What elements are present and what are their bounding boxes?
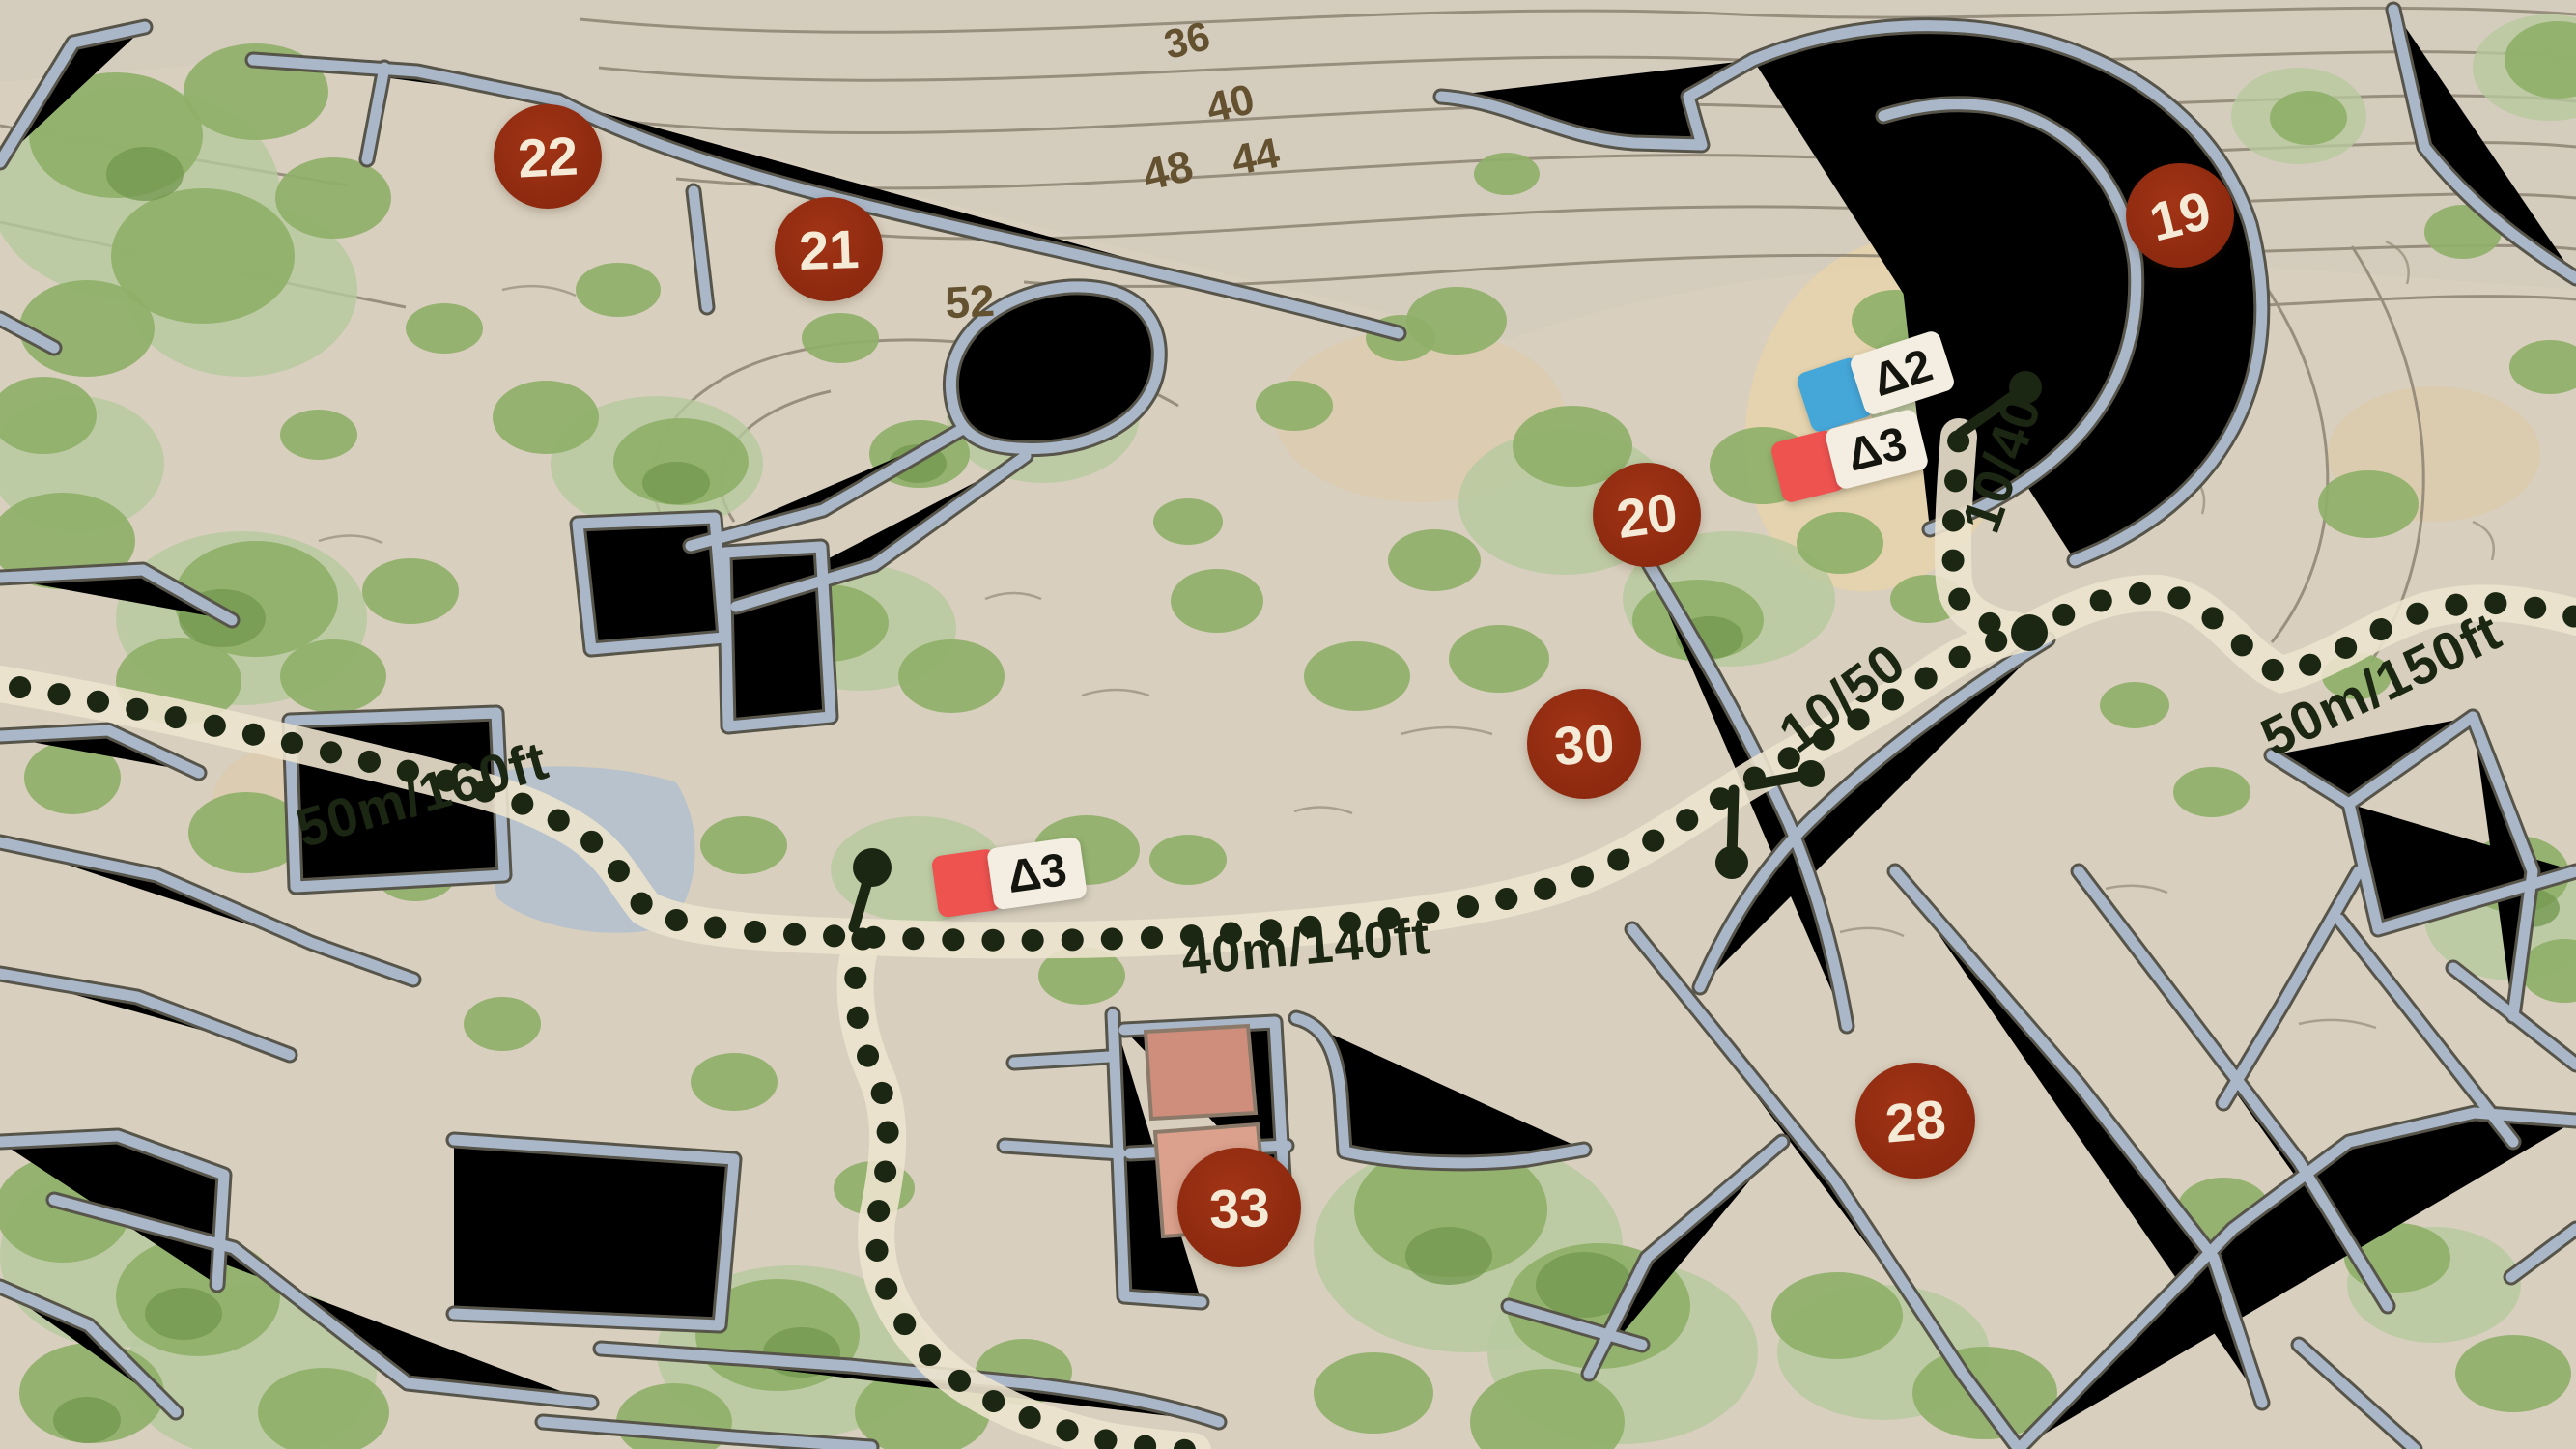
- site-marker-number: 22: [516, 124, 580, 189]
- site-marker-number: 21: [798, 216, 861, 281]
- flag-label: Δ3: [986, 837, 1088, 911]
- illustrated-site-map: 36 40 44 48 52 50m/160ft 40m/140ft 10/50…: [0, 0, 2576, 1449]
- waypoint-node: [1715, 846, 1748, 879]
- waypoint-node: [1798, 760, 1825, 787]
- contour-label-44: 44: [1228, 129, 1284, 185]
- contour-label-52: 52: [944, 274, 996, 329]
- site-marker-number: 28: [1882, 1087, 1948, 1154]
- site-marker-21[interactable]: 21: [775, 197, 883, 301]
- site-marker-number: 20: [1613, 479, 1682, 550]
- site-marker-number: 33: [1208, 1175, 1271, 1239]
- site-marker-20[interactable]: 20: [1593, 463, 1701, 567]
- waypoint-node: [2011, 614, 2048, 651]
- site-marker-number: 19: [2143, 178, 2217, 253]
- site-marker-number: 30: [1552, 710, 1617, 777]
- site-marker-28[interactable]: 28: [1855, 1063, 1975, 1179]
- site-marker-22[interactable]: 22: [494, 104, 602, 209]
- site-marker-30[interactable]: 30: [1527, 689, 1641, 799]
- waypoint-node: [853, 848, 892, 887]
- site-marker-33[interactable]: 33: [1177, 1148, 1301, 1267]
- site-marker-19[interactable]: 19: [2126, 163, 2234, 268]
